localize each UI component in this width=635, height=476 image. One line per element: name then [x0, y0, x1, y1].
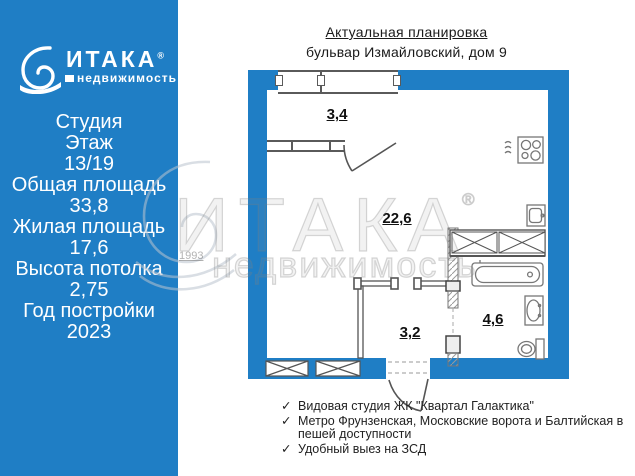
wardrobe-icon: [266, 361, 360, 376]
brand-tagline-row: недвижимость: [65, 71, 189, 85]
stove-icon: [505, 137, 543, 163]
balcony-door: [344, 143, 396, 171]
feature-text: Метро Фрунзенская, Московские ворота и Б…: [298, 414, 623, 442]
itaka-logo: ИТАКА® недвижимость: [18, 44, 168, 96]
hallway-walls: [354, 278, 448, 358]
area-label-bathroom: 4,6: [483, 311, 504, 328]
kitchen-sink-icon: [527, 205, 546, 226]
tagline-left-block: [65, 75, 74, 82]
plan-address: бульвар Измайловский, дом 9: [178, 44, 635, 60]
feature-text: Видовая студия ЖК "Квартал Галактика": [298, 399, 534, 413]
bathtub-icon: [472, 260, 543, 286]
feature-item: ✓ Удобный выез на ЗСД: [281, 443, 631, 457]
spec-floor-label: Этаж: [0, 133, 178, 154]
area-label-hall: 3,2: [400, 324, 421, 341]
plan-panel: Актуальная планировка бульвар Измайловск…: [178, 0, 635, 476]
floor-plan: 3,4 22,6 3,2 4,6: [248, 70, 569, 379]
area-label-room: 22,6: [382, 210, 411, 227]
spec-floor-value: 13/19: [0, 154, 178, 175]
toilet-icon: [518, 339, 544, 359]
spec-year-value: 2023: [0, 322, 178, 343]
spec-ceiling-value: 2,75: [0, 280, 178, 301]
closet-band: [450, 230, 545, 256]
swirl-logo-icon: [18, 44, 64, 94]
left-panel: ИТАКА® недвижимость Студия Этаж 13/19 Об…: [0, 0, 178, 476]
feature-item: ✓ Метро Фрунзенская, Московские ворота и…: [281, 415, 631, 442]
checkmark-icon: ✓: [281, 400, 291, 414]
feature-list: ✓ Видовая студия ЖК "Квартал Галактика" …: [281, 400, 631, 457]
area-label-balcony: 3,4: [327, 106, 348, 123]
plan-linework: [248, 70, 569, 420]
brand-tagline: недвижимость: [77, 71, 177, 85]
spec-year-label: Год постройки: [0, 301, 178, 322]
spec-living-area-label: Жилая площадь: [0, 217, 178, 238]
feature-text: Удобный выез на ЗСД: [298, 442, 426, 456]
spec-type: Студия: [0, 112, 178, 133]
registered-mark: ®: [157, 50, 164, 60]
spec-living-area-value: 17,6: [0, 238, 178, 259]
plan-title: Актуальная планировка: [178, 24, 635, 40]
washbasin-icon: [525, 296, 543, 325]
feature-item: ✓ Видовая студия ЖК "Квартал Галактика": [281, 400, 631, 414]
spec-total-area-value: 33,8: [0, 196, 178, 217]
checkmark-icon: ✓: [281, 415, 291, 429]
spec-ceiling-label: Высота потолка: [0, 259, 178, 280]
spec-total-area-label: Общая площадь: [0, 175, 178, 196]
flyer: ИТАКА® недвижимость Студия Этаж 13/19 Об…: [0, 0, 635, 476]
property-specs: Студия Этаж 13/19 Общая площадь 33,8 Жил…: [0, 112, 178, 343]
checkmark-icon: ✓: [281, 443, 291, 457]
brand-name: ИТАКА®: [66, 46, 164, 73]
